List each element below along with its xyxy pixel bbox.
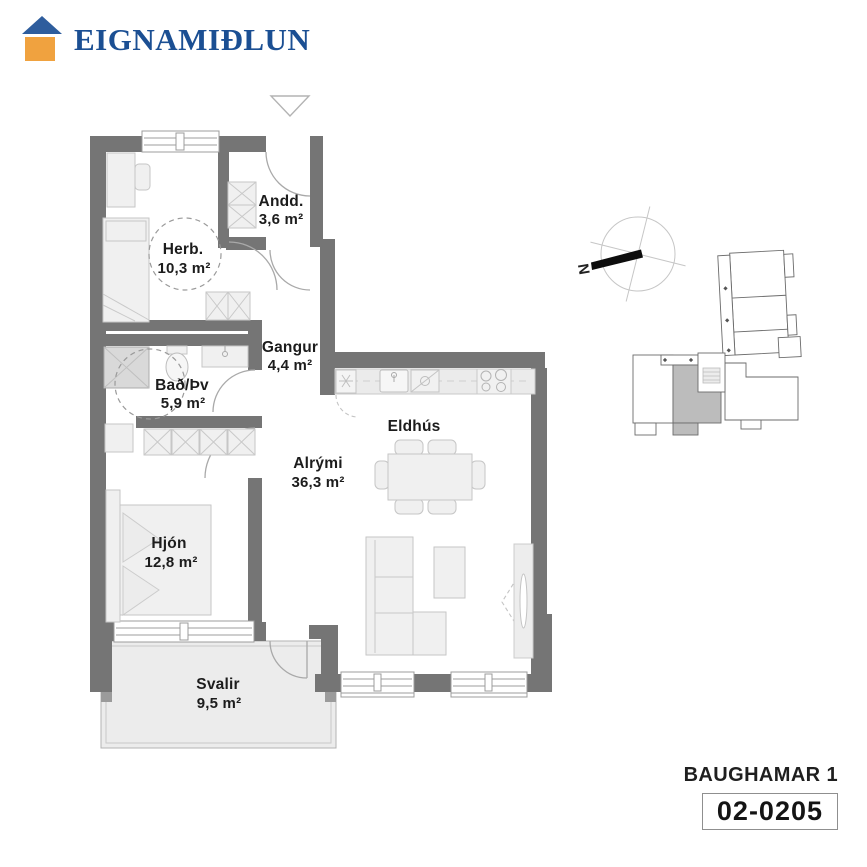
svg-text:Hjón: Hjón bbox=[151, 535, 186, 552]
window-herb bbox=[142, 131, 219, 152]
fridge-symbol bbox=[336, 370, 356, 393]
window-hjon bbox=[114, 621, 254, 642]
svg-text:Alrými: Alrými bbox=[293, 455, 342, 472]
svg-text:Bað/Þv: Bað/Þv bbox=[155, 377, 209, 394]
svg-text:4,4 m²: 4,4 m² bbox=[268, 357, 313, 374]
stairs-symbol bbox=[703, 368, 720, 383]
wardrobe-symbol bbox=[144, 429, 255, 455]
floorplan-page: EIGNAMIÐLUN bbox=[0, 0, 867, 867]
sink-symbol bbox=[202, 346, 248, 367]
wardrobe-symbol bbox=[228, 182, 256, 228]
building-name: BAUGHAMAR 1 bbox=[684, 764, 838, 787]
room-label-bad: Bað/Þv 5,9 m² bbox=[155, 377, 209, 412]
north-label: N bbox=[575, 262, 594, 276]
stove-symbol bbox=[477, 369, 511, 394]
room-label-andd: Andd. 3,6 m² bbox=[259, 193, 304, 228]
svg-text:9,5 m²: 9,5 m² bbox=[197, 695, 242, 712]
dining-table-symbol bbox=[375, 440, 485, 514]
dishwasher-symbol bbox=[411, 370, 439, 392]
svg-text:5,9 m²: 5,9 m² bbox=[161, 395, 206, 412]
key-plan bbox=[633, 250, 801, 435]
compass: N bbox=[575, 195, 697, 314]
washer-symbol bbox=[105, 424, 133, 452]
desk-symbol bbox=[107, 153, 150, 207]
shower-symbol bbox=[104, 347, 149, 388]
svg-text:Eldhús: Eldhús bbox=[388, 418, 441, 435]
toilet-symbol bbox=[166, 346, 188, 381]
window-living-2 bbox=[451, 672, 527, 697]
svg-text:12,8 m²: 12,8 m² bbox=[144, 554, 197, 571]
room-label-alrymi: Alrými 36,3 m² bbox=[291, 455, 344, 491]
plan-footer: BAUGHAMAR 1 02-0205 bbox=[684, 764, 838, 830]
coffee-table-symbol bbox=[434, 547, 465, 598]
room-label-herb: Herb. 10,3 m² bbox=[157, 241, 210, 277]
svg-text:Herb.: Herb. bbox=[163, 241, 204, 258]
svg-text:Svalir: Svalir bbox=[196, 676, 239, 693]
kitchen-sink-symbol bbox=[380, 370, 408, 392]
tv-cabinet-symbol bbox=[514, 544, 533, 658]
svg-text:Gangur: Gangur bbox=[262, 339, 318, 356]
svg-text:3,6 m²: 3,6 m² bbox=[259, 211, 304, 228]
single-bed-symbol bbox=[103, 218, 149, 322]
svg-text:Andd.: Andd. bbox=[259, 193, 304, 210]
room-label-eldhus: Eldhús bbox=[388, 418, 441, 435]
floor-plan: Herb. 10,3 m² Andd. 3,6 m² Gangur 4,4 m²… bbox=[0, 0, 867, 867]
unit-number-badge: 02-0205 bbox=[702, 793, 838, 830]
wardrobe-symbol bbox=[206, 292, 250, 320]
window-living-1 bbox=[341, 672, 414, 697]
svg-text:10,3 m²: 10,3 m² bbox=[157, 260, 210, 277]
room-label-gangur: Gangur 4,4 m² bbox=[262, 339, 318, 374]
svg-text:36,3 m²: 36,3 m² bbox=[291, 474, 344, 491]
entrance-arrow-icon bbox=[271, 96, 309, 116]
